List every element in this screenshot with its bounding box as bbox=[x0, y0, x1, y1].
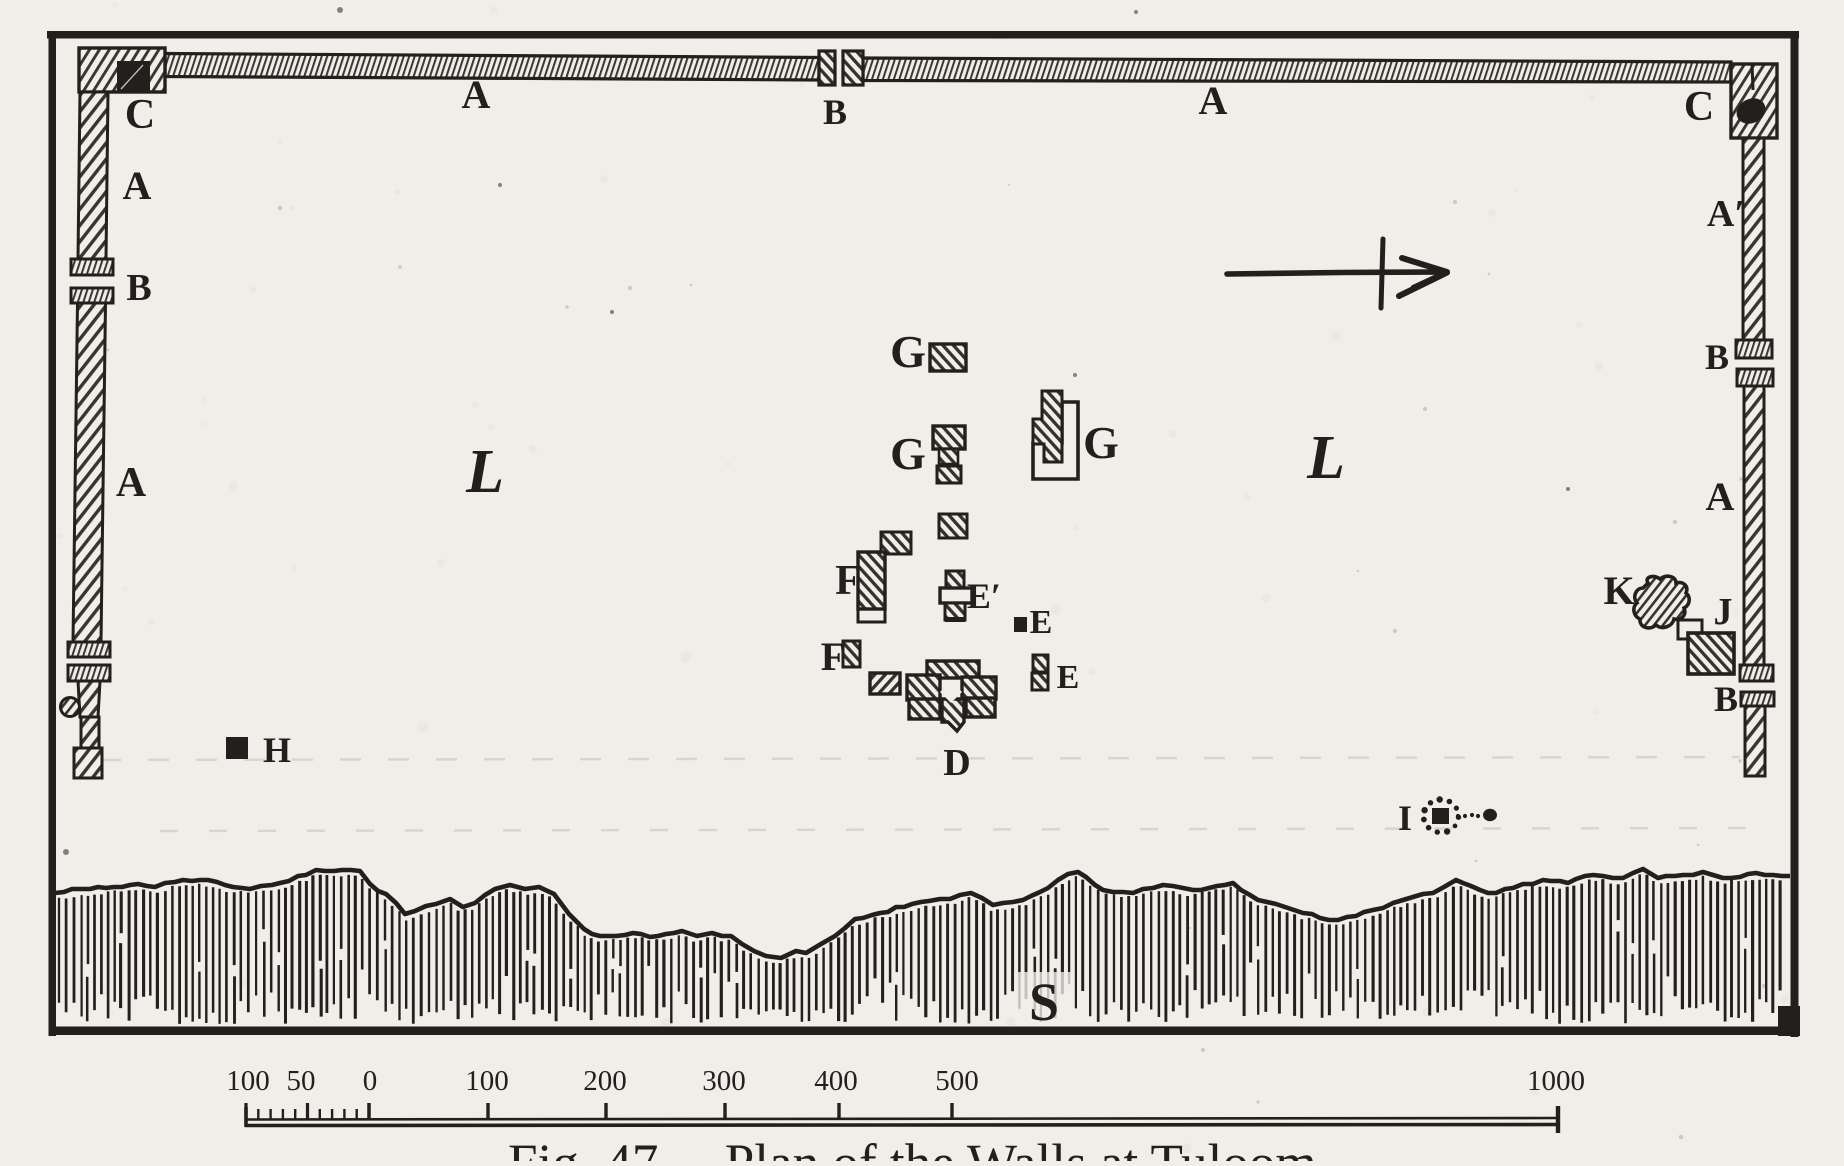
svg-text:B: B bbox=[126, 267, 151, 309]
svg-text:E: E bbox=[1030, 604, 1053, 641]
svg-text:1000: 1000 bbox=[1527, 1065, 1585, 1097]
svg-text:H: H bbox=[263, 730, 291, 770]
svg-text:L: L bbox=[465, 438, 504, 506]
svg-text:E: E bbox=[1057, 659, 1080, 696]
svg-text:200: 200 bbox=[583, 1065, 627, 1097]
svg-text:G: G bbox=[1083, 417, 1119, 468]
svg-text:50: 50 bbox=[287, 1065, 316, 1097]
svg-text:B: B bbox=[1714, 679, 1738, 719]
svg-text:A′: A′ bbox=[1707, 193, 1745, 235]
svg-text:C: C bbox=[125, 92, 155, 138]
svg-text:300: 300 bbox=[702, 1065, 746, 1097]
svg-text:G: G bbox=[890, 428, 926, 479]
svg-text:E′: E′ bbox=[967, 576, 1001, 616]
svg-text:L: L bbox=[1306, 424, 1345, 492]
svg-text:B: B bbox=[1705, 337, 1729, 377]
svg-text:S: S bbox=[1029, 972, 1059, 1032]
svg-text:I: I bbox=[1398, 798, 1412, 838]
svg-text:B: B bbox=[823, 92, 847, 132]
svg-text:F: F bbox=[821, 634, 845, 679]
svg-text:G: G bbox=[890, 326, 926, 377]
svg-text:100: 100 bbox=[226, 1065, 270, 1097]
svg-text:A: A bbox=[1706, 474, 1735, 519]
svg-text:A: A bbox=[116, 460, 147, 506]
svg-text:A: A bbox=[1199, 78, 1228, 123]
svg-text:J: J bbox=[1714, 591, 1733, 633]
svg-text:500: 500 bbox=[935, 1065, 979, 1097]
svg-text:100: 100 bbox=[465, 1065, 509, 1097]
svg-text:A: A bbox=[123, 163, 152, 208]
svg-text:A: A bbox=[462, 72, 491, 117]
svg-text:K: K bbox=[1603, 568, 1634, 613]
svg-text:400: 400 bbox=[814, 1065, 858, 1097]
svg-text:0: 0 bbox=[363, 1065, 378, 1097]
svg-text:Fig. 47.—Plan of the Walls at: Fig. 47.—Plan of the Walls at Tuloom. bbox=[508, 1133, 1330, 1161]
svg-text:C: C bbox=[1684, 84, 1714, 130]
svg-text:F: F bbox=[835, 558, 861, 604]
svg-text:D: D bbox=[943, 742, 970, 784]
